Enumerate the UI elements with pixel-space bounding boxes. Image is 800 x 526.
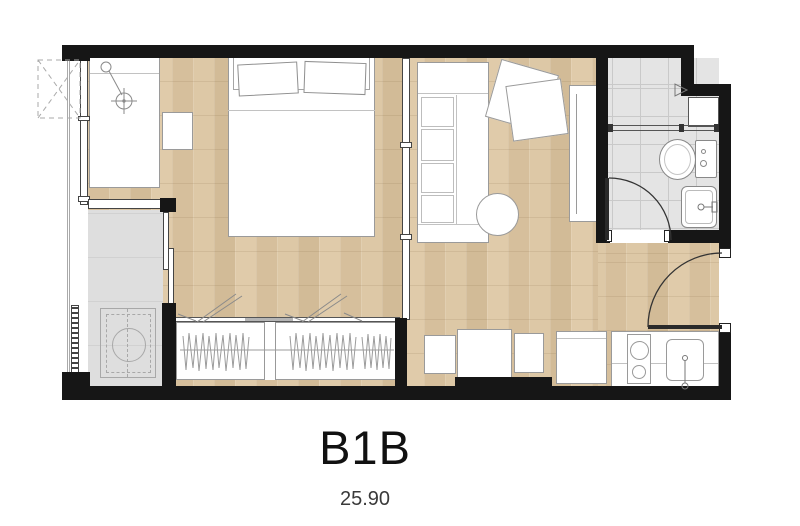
dining-chair [514, 333, 544, 373]
dining-table [457, 329, 512, 380]
round-side-table [476, 193, 519, 236]
sofa-armrest-line [418, 93, 488, 94]
wardrobe [176, 322, 400, 380]
sofa-cushion [421, 97, 454, 127]
toilet-flush-button [701, 149, 706, 154]
pillow [303, 61, 366, 95]
cabinet-line [557, 338, 606, 339]
tv-line [576, 94, 577, 214]
wardrobe-divider [264, 322, 276, 380]
partition-mullion [400, 234, 412, 240]
wall-balcony-bottom-stub [62, 372, 90, 388]
dining-chair [424, 335, 456, 374]
tv-console [569, 85, 598, 222]
unit-area-label: 25.90 [265, 489, 465, 509]
desk-cabinet [89, 56, 160, 188]
shower-screen-post [608, 124, 613, 132]
wall-balcony-lower [162, 303, 176, 388]
wall-bottom [62, 386, 731, 400]
bathroom-door-leaf [605, 178, 609, 240]
balcony-sliding-door-panel [168, 248, 174, 305]
refrigerator-cabinet [556, 331, 607, 384]
floor-plan: B1B 25.90 [0, 0, 800, 526]
bedroom-glass-partition [402, 58, 410, 320]
washing-machine-centerline [127, 309, 129, 377]
nightstand [162, 112, 193, 150]
wall-balcony-post [160, 198, 176, 212]
stove [627, 334, 651, 384]
floor-cushion [505, 78, 568, 141]
shower-screen-post [679, 124, 684, 132]
partition-mullion [400, 142, 412, 148]
wardrobe-track-sill [245, 318, 293, 321]
shower-screen [608, 125, 719, 131]
wall-top [62, 45, 688, 58]
desk-divider-line [90, 73, 159, 74]
kitchen-sink [666, 339, 704, 381]
unit-name-label: B1B [265, 424, 465, 471]
stove-burner [632, 365, 646, 379]
toilet-bowl-inner [664, 144, 691, 175]
bedroom-window-glass [80, 58, 88, 205]
bathroom-sink-basin [685, 190, 713, 224]
sofa-front-line [456, 95, 457, 225]
entry-door-jamb [719, 248, 731, 258]
service-shaft [688, 97, 719, 127]
ac-condenser-symbol [38, 60, 80, 118]
wall-partition-stub [395, 318, 407, 388]
balcony-railing-line [67, 58, 70, 390]
stove-burner [630, 341, 649, 360]
sofa-cushion [421, 195, 454, 223]
sofa-cushion [421, 163, 454, 193]
balcony-top-window [88, 199, 162, 209]
entry-door-leaf [648, 325, 722, 329]
toilet-tank [695, 140, 717, 178]
pillow [237, 61, 299, 96]
bathroom-door-jamb [664, 230, 670, 242]
toilet-flush-button [700, 160, 707, 167]
washing-machine [100, 308, 156, 378]
sofa-cushion [421, 129, 454, 161]
washing-machine-drum [112, 328, 146, 362]
wall-bottom-thick-segment [455, 377, 552, 389]
bed-fold-line [228, 110, 375, 111]
window-mullion [78, 116, 90, 121]
ac-louver-grille [71, 305, 79, 375]
wall-top-left-corner [62, 45, 90, 61]
wall-bathroom-south-right [668, 230, 731, 243]
